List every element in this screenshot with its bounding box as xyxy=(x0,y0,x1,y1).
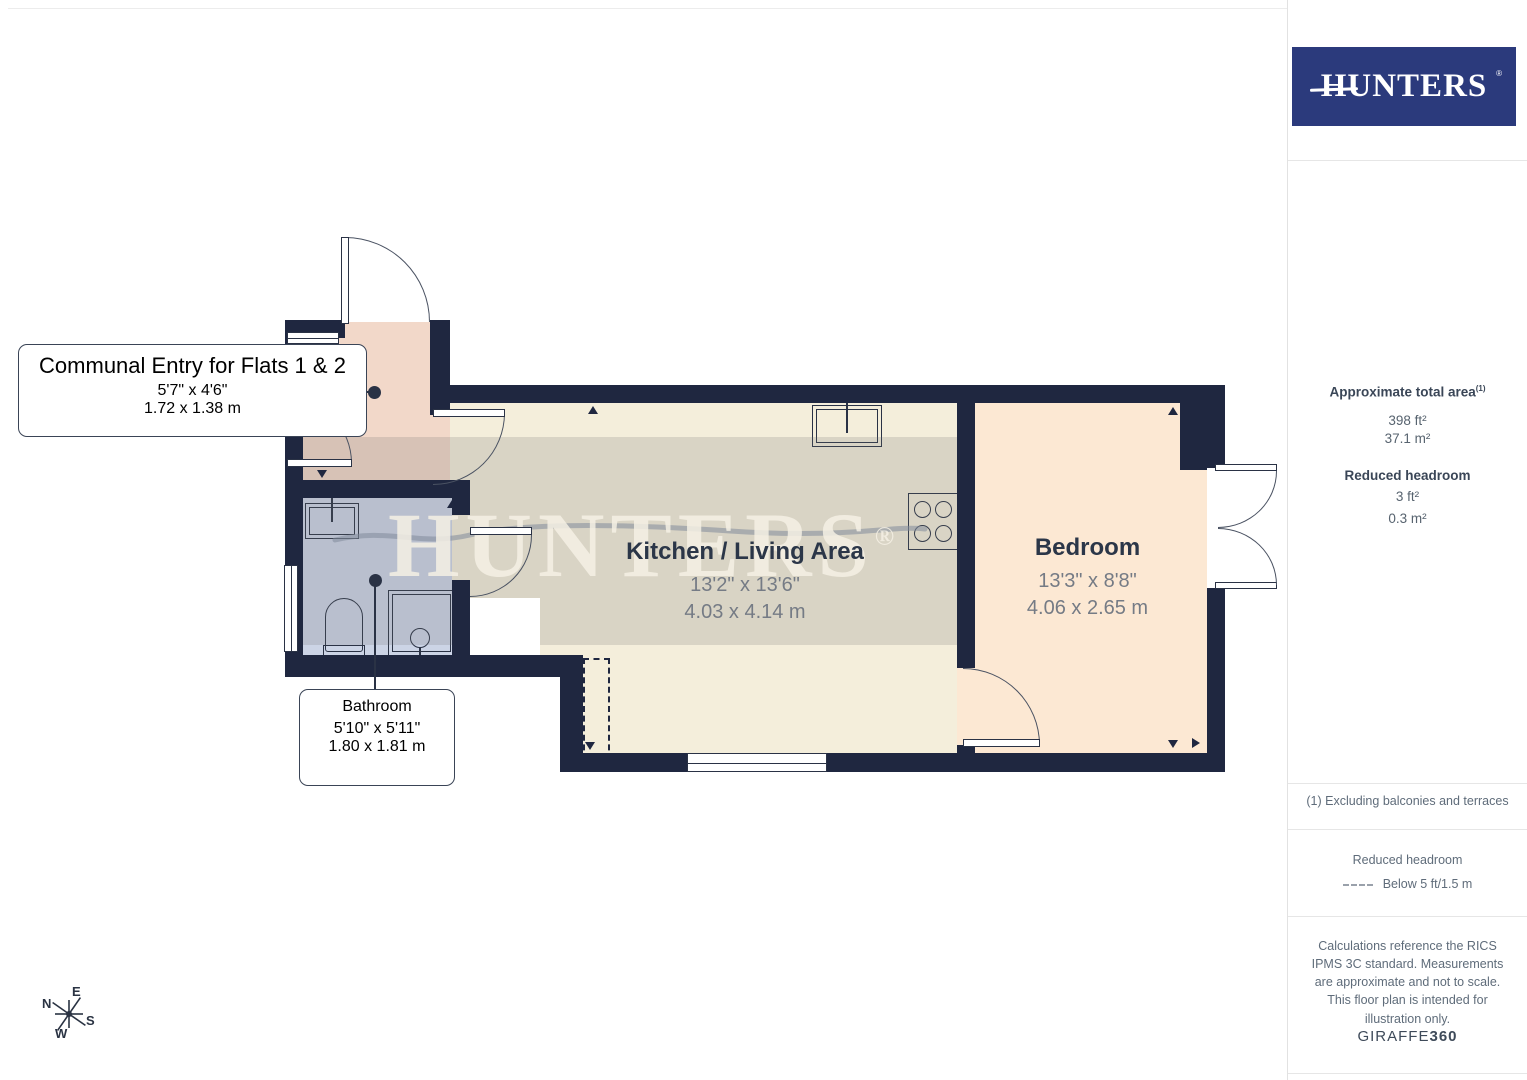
wall xyxy=(452,480,470,515)
footnote: (1) Excluding balconies and terraces xyxy=(1288,794,1527,808)
registered-icon: ® xyxy=(1496,69,1502,78)
bedroom-label: Bedroom 13'3" x 8'8" 4.06 x 2.65 m xyxy=(975,534,1200,622)
arrow-icon xyxy=(317,470,327,478)
bathroom-label: Bathroom 5'10" x 5'11" 1.80 x 1.81 m xyxy=(299,689,455,786)
room-name: Communal Entry for Flats 1 & 2 xyxy=(19,353,366,379)
credit-bold: 360 xyxy=(1429,1028,1457,1045)
area-imperial: 398 ft² xyxy=(1288,413,1527,428)
floorplan-page: HUNTERS® xyxy=(0,0,1527,1080)
bathroom-door-leaf xyxy=(470,527,532,535)
bedroom-door-leaf xyxy=(963,739,1040,747)
wall xyxy=(975,385,1225,403)
room-dims-imperial: 13'2" x 13'6" xyxy=(540,572,950,599)
flat-door-leaf xyxy=(287,459,352,467)
wall xyxy=(1207,588,1225,772)
wall xyxy=(285,655,583,677)
arrow-icon xyxy=(585,742,595,750)
headroom-imperial: 3 ft² xyxy=(1288,489,1527,504)
hunters-logo-text: HUNTERS xyxy=(1292,47,1516,126)
compass-e: E xyxy=(72,984,81,999)
area-heading: Approximate total area(1) xyxy=(1288,384,1527,400)
wall xyxy=(452,580,470,655)
compass-s: S xyxy=(86,1013,95,1028)
area-heading-text: Approximate total area xyxy=(1329,385,1475,400)
entry-door-leaf xyxy=(341,237,349,324)
wall xyxy=(430,385,975,403)
compass-n: N xyxy=(42,996,51,1011)
arrow-icon xyxy=(1168,740,1178,748)
giraffe360-credit: GIRAFFE360 xyxy=(1288,1028,1527,1045)
divider xyxy=(1288,1073,1527,1074)
room-dims-metric: 4.03 x 4.14 m xyxy=(540,599,950,626)
window-pane-line xyxy=(288,338,338,339)
room-dims-imperial: 5'7" x 4'6" xyxy=(19,382,366,400)
door-swing-arc xyxy=(1218,528,1277,585)
leader-dot xyxy=(369,574,382,587)
divider xyxy=(1288,916,1527,917)
arrow-icon xyxy=(588,406,598,414)
legend-heading: Reduced headroom xyxy=(1288,853,1527,867)
wall xyxy=(957,403,975,668)
room-dims-metric: 1.72 x 1.38 m xyxy=(19,400,366,418)
arrow-icon xyxy=(447,500,457,508)
headroom-metric: 0.3 m² xyxy=(1288,511,1527,526)
info-sidebar: Approximate total area(1) 398 ft² 37.1 m… xyxy=(1287,0,1527,1080)
credit-normal: GIRAFFE xyxy=(1357,1028,1429,1045)
legend-row: Below 5 ft/1.5 m xyxy=(1288,877,1527,891)
wall xyxy=(1207,403,1225,468)
french-door-top-leaf xyxy=(1215,464,1277,471)
room-dims-imperial: 13'3" x 8'8" xyxy=(975,568,1200,595)
kitchen-door-leaf xyxy=(433,409,505,417)
arrow-icon xyxy=(1168,407,1178,415)
window xyxy=(287,332,339,344)
room-dims-metric: 1.80 x 1.81 m xyxy=(300,738,454,756)
room-dims-imperial: 5'10" x 5'11" xyxy=(300,720,454,738)
divider xyxy=(1288,160,1527,161)
compass-w: W xyxy=(55,1026,67,1041)
arrow-icon xyxy=(1192,738,1200,748)
legend-label: Below 5 ft/1.5 m xyxy=(1383,877,1473,891)
wall xyxy=(560,753,687,772)
door-swing-arc xyxy=(345,237,430,322)
area-heading-footnote-ref: (1) xyxy=(1476,384,1486,393)
hunters-logo: HUNTERS ® xyxy=(1292,47,1516,126)
kitchen-tap xyxy=(846,403,848,433)
communal-entry-label: Communal Entry for Flats 1 & 2 5'7" x 4'… xyxy=(18,344,367,437)
window xyxy=(687,753,827,772)
leader-dot xyxy=(368,386,381,399)
room-name: Bathroom xyxy=(300,698,454,716)
window-pane-line xyxy=(688,763,826,764)
disclaimer: Calculations reference the RICS IPMS 3C … xyxy=(1288,937,1527,1028)
headroom-heading: Reduced headroom xyxy=(1288,468,1527,483)
area-metric: 37.1 m² xyxy=(1288,431,1527,446)
room-name: Kitchen / Living Area xyxy=(540,538,950,566)
dashed-line-icon xyxy=(1343,884,1373,886)
room-dims-metric: 4.06 x 2.65 m xyxy=(975,595,1200,622)
wall xyxy=(827,753,975,772)
window xyxy=(284,565,298,652)
divider xyxy=(1288,783,1527,784)
divider xyxy=(1288,829,1527,830)
leader-line xyxy=(374,585,376,690)
door-swing-arc xyxy=(1218,471,1277,528)
wall xyxy=(975,753,1225,772)
kitchen-label: Kitchen / Living Area 13'2" x 13'6" 4.03… xyxy=(540,538,950,626)
window-pane-line xyxy=(291,566,292,651)
room-name: Bedroom xyxy=(975,534,1200,562)
stair-recess xyxy=(470,598,540,655)
